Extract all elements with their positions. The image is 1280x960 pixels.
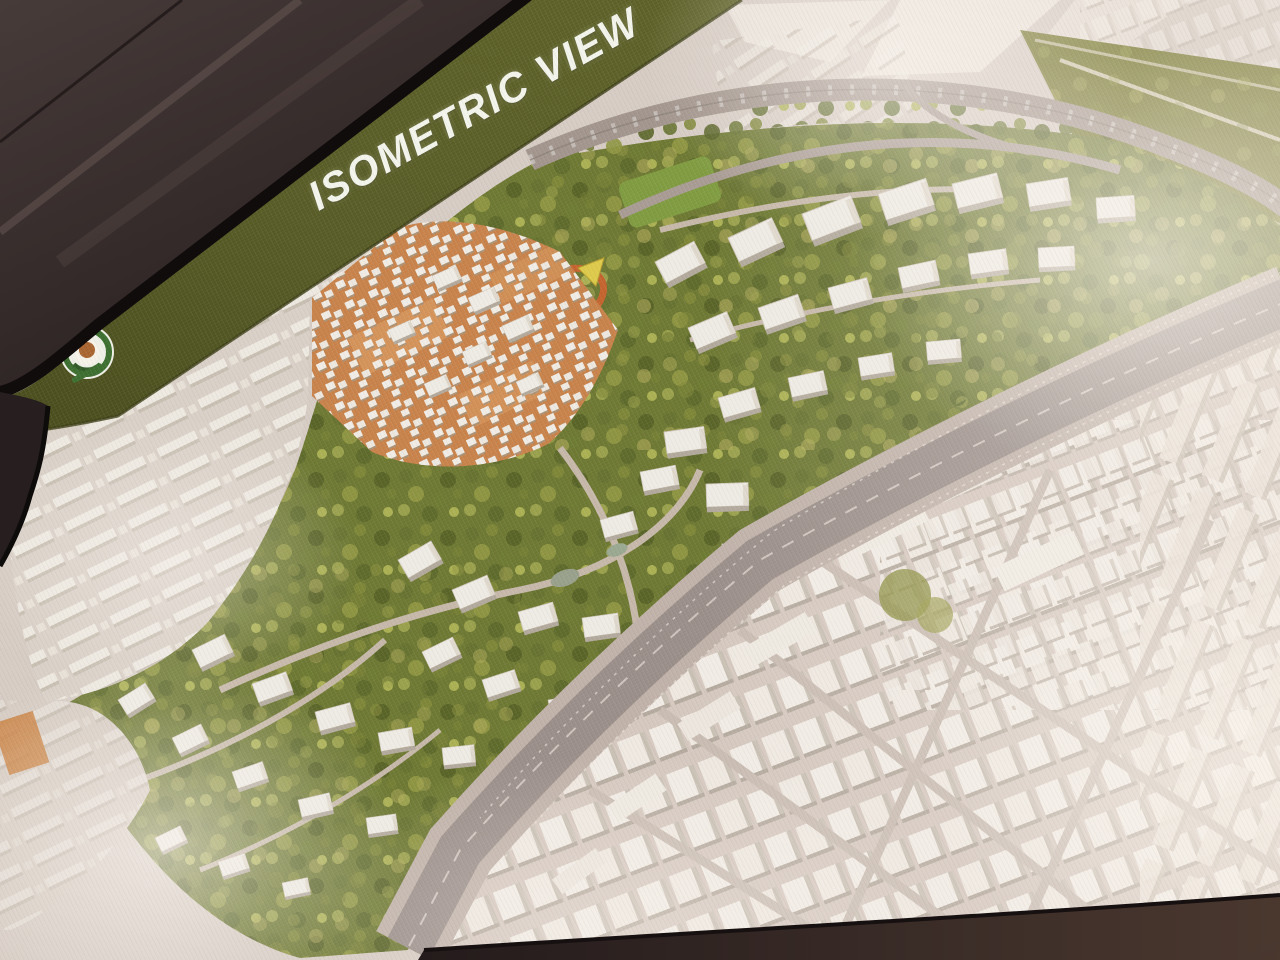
slide-background bbox=[0, 0, 1280, 960]
ceiling-dark-corner bbox=[0, 0, 515, 398]
large-warehouse-slabs bbox=[552, 455, 1085, 894]
linear-halls bbox=[655, 438, 989, 669]
camera-vignette bbox=[0, 0, 1280, 960]
median-tree-corridor bbox=[475, 268, 1280, 815]
pond bbox=[548, 565, 582, 590]
glare-overlay bbox=[0, 0, 1280, 960]
service-roads bbox=[590, 470, 1280, 960]
ceiling-seam bbox=[60, 0, 420, 262]
top-right-warehouses bbox=[1080, 0, 1280, 95]
farm-fields bbox=[1020, 20, 1280, 310]
curved-highway bbox=[530, 85, 1280, 215]
slip-road bbox=[620, 142, 1120, 215]
pond bbox=[605, 541, 630, 560]
yellow-landmark-building bbox=[578, 258, 604, 286]
glare-overlay bbox=[0, 0, 1280, 960]
title-banner bbox=[0, 0, 742, 434]
room-overlay bbox=[0, 0, 1280, 960]
campus-buildings bbox=[95, 173, 1136, 900]
glare-overlay bbox=[0, 0, 1280, 960]
wall-left-wedge bbox=[0, 392, 48, 566]
tree-cluster bbox=[879, 569, 931, 621]
project-logo bbox=[60, 325, 114, 384]
projector-pixel-texture bbox=[0, 0, 1280, 960]
photo-of-projection-screen: ISOMETRIC VIEW bbox=[0, 0, 1280, 960]
campus-lanes bbox=[140, 189, 1040, 920]
wall-bottom-strip bbox=[418, 895, 1280, 960]
ceiling-seam bbox=[0, 0, 182, 142]
left-edge-plaza bbox=[0, 711, 49, 775]
souk-district bbox=[300, 210, 630, 490]
logistics-district bbox=[420, 290, 1280, 960]
screen-bezel-edge bbox=[0, 0, 530, 392]
central-lawn bbox=[617, 154, 723, 229]
existing-city-district bbox=[0, 190, 440, 940]
far-right-halls bbox=[1140, 340, 1280, 920]
ceiling-seam bbox=[0, 0, 300, 232]
green-campus bbox=[0, 100, 1280, 960]
glare-overlay bbox=[0, 0, 1280, 960]
slide-title: ISOMETRIC VIEW bbox=[301, 0, 649, 220]
glare-overlay bbox=[0, 0, 1280, 960]
running-track bbox=[507, 256, 614, 345]
glare-overlay bbox=[0, 0, 1280, 960]
glare-overlay bbox=[0, 0, 1280, 960]
development-pads bbox=[712, 0, 1280, 150]
main-boulevard bbox=[408, 272, 1280, 948]
masterplan-rendering bbox=[0, 0, 1280, 960]
